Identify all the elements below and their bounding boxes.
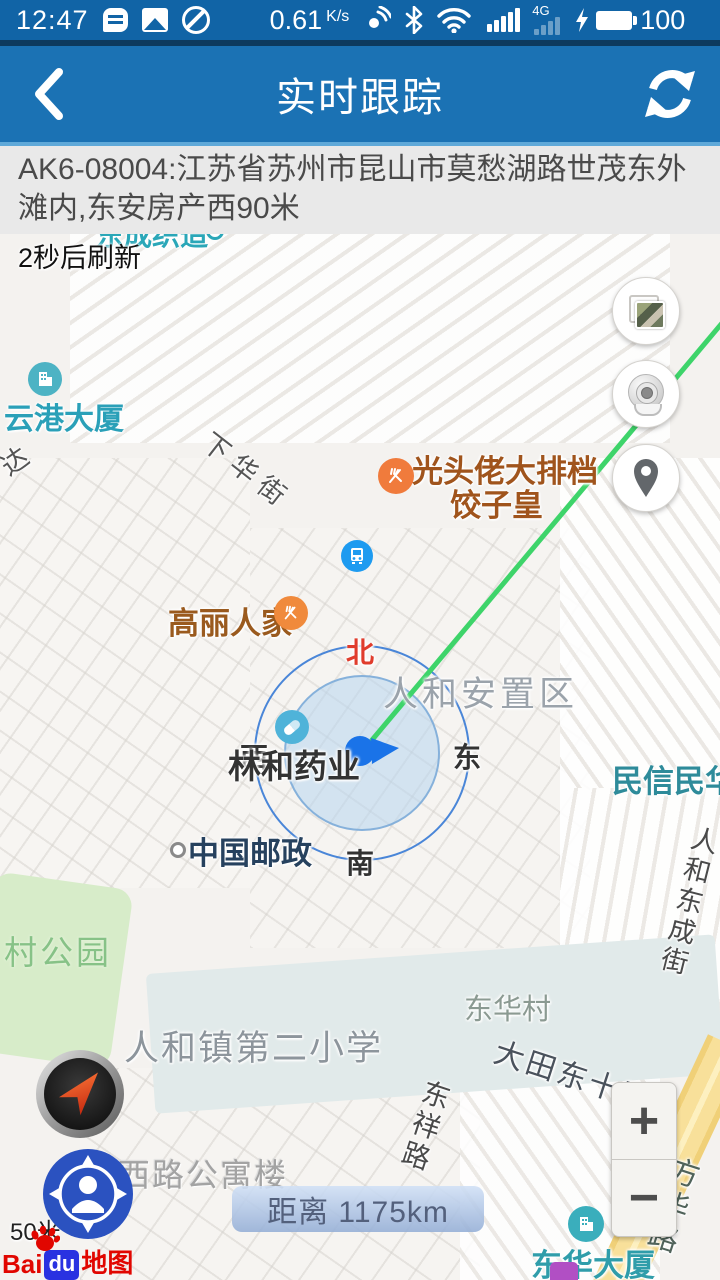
- restaurant-icon: [274, 596, 308, 630]
- network-speed: 0.61 K/s: [270, 5, 350, 36]
- compass-south-label: 南: [346, 842, 374, 882]
- page-title: 实时跟踪: [276, 65, 444, 123]
- zoom-control: + −: [611, 1082, 677, 1237]
- sim2-signal-icon: 4G: [532, 5, 560, 35]
- building-icon: [568, 1206, 604, 1242]
- heading-triangle-icon: [371, 738, 399, 764]
- logo-text-du: du: [44, 1250, 79, 1280]
- satellite-layer-button[interactable]: [612, 277, 680, 345]
- refresh-countdown: 2秒后刷新: [18, 236, 141, 275]
- poi-dot-icon: [170, 842, 186, 858]
- gallery-icon: [142, 8, 168, 32]
- bus-stop-icon: [341, 540, 373, 572]
- logo-text-bai: Bai: [2, 1249, 42, 1280]
- poi-label: 林和药业: [228, 740, 360, 788]
- purple-poi-icon: [550, 1262, 578, 1280]
- poi-label: 饺子皇: [450, 480, 543, 525]
- school-label: 人和镇第二小学: [124, 1020, 383, 1071]
- pharmacy-icon: [275, 710, 309, 744]
- district-label: 人和安置区: [383, 666, 578, 717]
- village-label: 东华村: [464, 986, 551, 1028]
- clock: 12:47: [16, 5, 89, 36]
- back-button[interactable]: [18, 60, 78, 128]
- building-icon: [28, 362, 62, 396]
- battery-icon: [596, 11, 632, 30]
- poi-pin-button[interactable]: [612, 444, 680, 512]
- poi-label: 云港大厦: [4, 394, 124, 438]
- compass-button[interactable]: [34, 1048, 126, 1140]
- map-blocks: [0, 458, 250, 888]
- back-chevron-icon: [31, 66, 65, 122]
- title-bar: 实时跟踪: [0, 46, 720, 142]
- streetview-camera-button[interactable]: [612, 360, 680, 428]
- baidu-maps-logo: Bai du 地图: [2, 1242, 142, 1280]
- poi-label: 民信民华: [612, 756, 720, 801]
- do-not-disturb-icon: [182, 6, 210, 34]
- battery-percent: 100: [640, 5, 685, 36]
- park-label: 村公园: [4, 926, 112, 974]
- gps-icon: [363, 6, 391, 34]
- signal-bars-icon: [485, 8, 520, 32]
- zoom-out-button[interactable]: −: [612, 1160, 676, 1236]
- compass-east-label: 东: [453, 736, 481, 776]
- baidu-paw-icon: [30, 1226, 60, 1252]
- realtime-tracking-screen: 12:47 0.61 K/s: [0, 0, 720, 1280]
- zoom-in-button[interactable]: +: [612, 1083, 676, 1160]
- layers-icon: [629, 295, 663, 327]
- header-top-shadow: [0, 40, 720, 46]
- compass-north-label: 北: [346, 631, 374, 671]
- map-blocks: [70, 228, 670, 443]
- restaurant-icon: [378, 458, 414, 494]
- map-canvas[interactable]: 北 东 南 西 东成织造 2秒后刷新 云港大厦 达 下华街 光头佬大排档 饺子皇…: [0, 228, 720, 1280]
- refresh-button[interactable]: [634, 58, 706, 130]
- status-bar: 12:47 0.61 K/s: [0, 0, 720, 40]
- poi-label: 中国邮政: [188, 828, 312, 873]
- device-address-bar: AK6-08004:江苏省苏州市昆山市莫愁湖路世茂东外滩内,东安房产西90米: [0, 146, 720, 234]
- wifi-icon: [437, 7, 471, 33]
- charging-icon: [574, 7, 590, 33]
- message-icon: [103, 8, 128, 32]
- webcam-icon: [626, 374, 666, 414]
- poi-label: 高丽人家: [168, 598, 292, 643]
- map-pin-icon: [631, 458, 661, 498]
- refresh-icon: [639, 63, 701, 125]
- logo-text-ditu: 地图: [81, 1243, 133, 1280]
- distance-readout: 距离 1175km: [232, 1186, 484, 1232]
- bluetooth-icon: [405, 6, 423, 34]
